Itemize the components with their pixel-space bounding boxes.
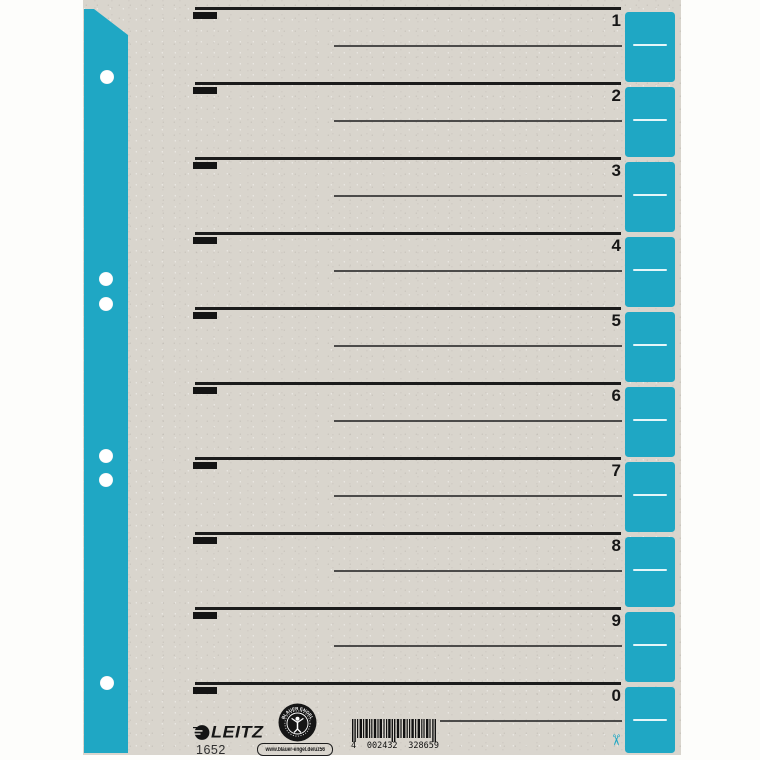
field-start-marker: [193, 387, 217, 394]
field-start-marker: [193, 12, 217, 19]
punch-hole: [99, 473, 113, 487]
writing-line: [195, 157, 621, 160]
row-number: 4: [561, 236, 621, 256]
secondary-writing-line: [440, 720, 622, 722]
index-tab: [625, 687, 675, 753]
leitz-logo: LEITZ: [193, 723, 264, 741]
barcode-group1: 002432: [367, 741, 398, 751]
row-number: 6: [561, 386, 621, 406]
secondary-writing-line: [334, 645, 622, 647]
field-start-marker: [193, 162, 217, 169]
divider-sheet: [83, 0, 681, 755]
writing-line: [195, 607, 621, 610]
index-tab: [625, 237, 675, 307]
secondary-writing-line: [334, 420, 622, 422]
tab-label-line: [633, 419, 667, 421]
row-number: 1: [561, 11, 621, 31]
barcode-group2: 328659: [408, 741, 439, 751]
blauer-engel-seal-icon: BLAUER ENGEL: [278, 703, 317, 742]
writing-line: [195, 232, 621, 235]
index-tab: [625, 387, 675, 457]
writing-line: [195, 382, 621, 385]
field-start-marker: [193, 612, 217, 619]
index-tab: [625, 87, 675, 157]
tab-label-line: [633, 719, 667, 721]
index-tab: [625, 462, 675, 532]
spine-strip: [84, 0, 128, 753]
field-start-marker: [193, 87, 217, 94]
writing-line: [195, 7, 621, 10]
field-start-marker: [193, 462, 217, 469]
barcode: [352, 719, 438, 742]
punch-hole: [100, 70, 114, 84]
row-number: 7: [561, 461, 621, 481]
index-tab: [625, 162, 675, 232]
row-number: 3: [561, 161, 621, 181]
leitz-swoosh-icon: [193, 724, 210, 741]
index-tab: [625, 612, 675, 682]
punch-hole: [100, 676, 114, 690]
index-tab: [625, 537, 675, 607]
index-tab: [625, 12, 675, 82]
tab-label-line: [633, 344, 667, 346]
scissors-icon: ✂: [604, 729, 626, 751]
tab-label-line: [633, 644, 667, 646]
eco-label-url: www.blauer-engel.de/uz56: [265, 747, 324, 753]
row-number: 8: [561, 536, 621, 556]
writing-line: [195, 682, 621, 685]
punch-hole: [99, 272, 113, 286]
writing-line: [195, 532, 621, 535]
barcode-digits: 4 002432 328659: [351, 741, 439, 751]
row-number: 2: [561, 86, 621, 106]
secondary-writing-line: [334, 45, 622, 47]
field-start-marker: [193, 237, 217, 244]
secondary-writing-line: [334, 570, 622, 572]
row-number: 9: [561, 611, 621, 631]
field-start-marker: [193, 687, 217, 694]
punch-hole: [99, 449, 113, 463]
punch-hole: [99, 297, 113, 311]
tab-label-line: [633, 494, 667, 496]
secondary-writing-line: [334, 345, 622, 347]
index-tab: [625, 312, 675, 382]
row-number: 5: [561, 311, 621, 331]
brand-wordmark: LEITZ: [211, 722, 264, 741]
secondary-writing-line: [334, 495, 622, 497]
tab-label-line: [633, 269, 667, 271]
field-start-marker: [193, 312, 217, 319]
eco-label-pill: www.blauer-engel.de/uz56: [257, 743, 333, 756]
secondary-writing-line: [334, 120, 622, 122]
writing-line: [195, 457, 621, 460]
tab-label-line: [633, 194, 667, 196]
field-start-marker: [193, 537, 217, 544]
row-number: 0: [561, 686, 621, 706]
writing-line: [195, 82, 621, 85]
tab-label-line: [633, 569, 667, 571]
product-number: 1652: [196, 743, 226, 757]
barcode-prefix: 4: [351, 741, 356, 751]
tab-label-line: [633, 119, 667, 121]
tab-label-line: [633, 44, 667, 46]
secondary-writing-line: [334, 195, 622, 197]
secondary-writing-line: [334, 270, 622, 272]
writing-line: [195, 307, 621, 310]
